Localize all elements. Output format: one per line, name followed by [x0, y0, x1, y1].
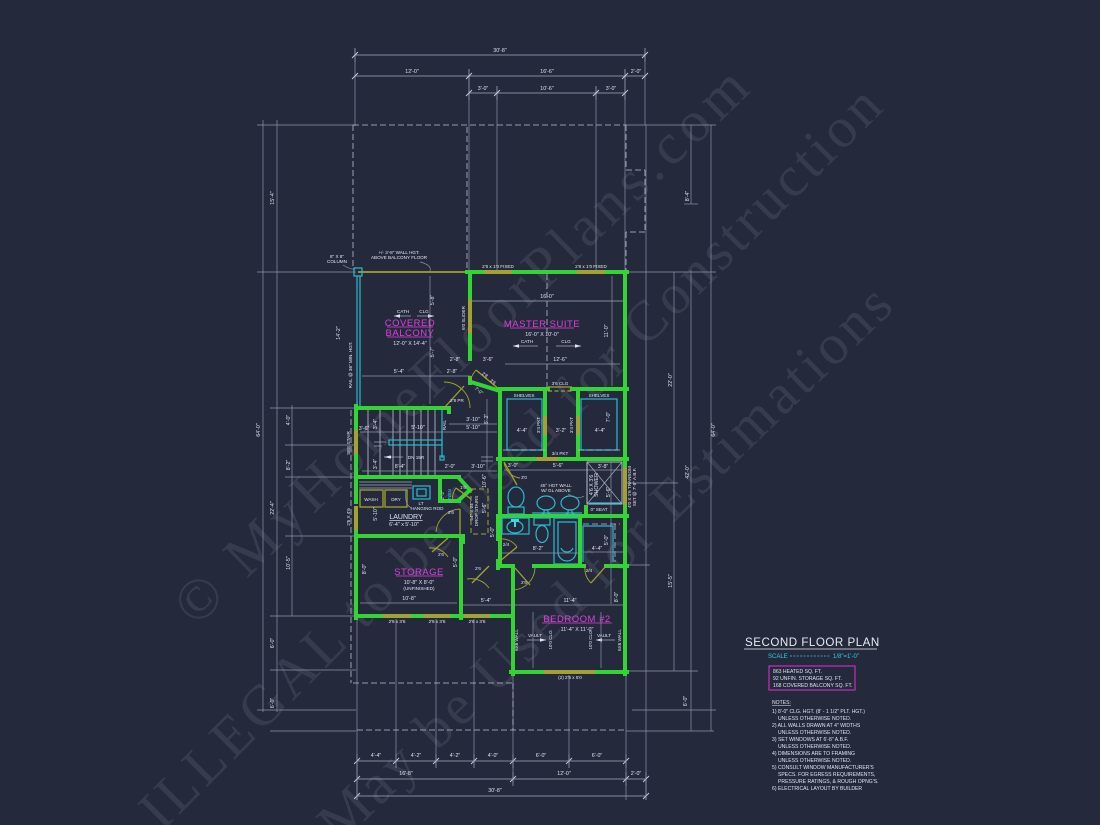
svg-text:3'6 CLG: 3'6 CLG [552, 381, 569, 386]
svg-text:2'-8": 2'-8" [450, 357, 461, 363]
svg-text:14'-2": 14'-2" [336, 326, 342, 340]
svg-text:10'0 CLG: 10'0 CLG [588, 630, 593, 650]
svg-text:NOTES:: NOTES: [772, 700, 791, 706]
svg-text:CATH: CATH [397, 309, 409, 314]
svg-text:3/4 PKT: 3/4 PKT [552, 451, 569, 456]
svg-text:RAIL: RAIL [442, 419, 447, 430]
svg-text:RAIL @ 36" MIN. HGT.: RAIL @ 36" MIN. HGT. [348, 342, 353, 389]
svg-text:8'-4": 8'-4" [395, 464, 406, 470]
svg-text:6X6 WALL: 6X6 WALL [617, 629, 622, 651]
svg-text:0" SEAT: 0" SEAT [590, 507, 607, 512]
svg-text:8'-2": 8'-2" [286, 460, 292, 471]
svg-text:92 UNFIN. STORAGE SQ. FT.: 92 UNFIN. STORAGE SQ. FT. [773, 676, 842, 682]
svg-text:LAUNDRY: LAUNDRY [389, 514, 423, 521]
svg-text:DRY: DRY [391, 497, 401, 502]
svg-text:3'4 PKT: 3'4 PKT [569, 417, 574, 433]
svg-text:2'6 x 3'6: 2'6 x 3'6 [429, 619, 446, 624]
svg-text:6'-0": 6'-0" [683, 696, 689, 707]
svg-text:6'-0": 6'-0" [536, 753, 547, 759]
svg-text:12'-0": 12'-0" [557, 771, 571, 777]
svg-text:168 COVERED BALCONY SQ. FT.: 168 COVERED BALCONY SQ. FT. [773, 683, 852, 689]
svg-text:3'-4": 3'-4" [373, 459, 379, 470]
svg-text:2'6 x 3'6: 2'6 x 3'6 [389, 619, 406, 624]
svg-text:64'-0": 64'-0" [711, 423, 717, 437]
svg-text:30'-8": 30'-8" [488, 788, 502, 794]
svg-text:3'-2": 3'-2" [556, 428, 567, 434]
svg-text:5'-6": 5'-6" [482, 503, 488, 514]
svg-text:10'-6": 10'-6" [540, 86, 554, 92]
svg-text:15'-4": 15'-4" [270, 191, 276, 205]
svg-text:5'-0": 5'-0" [490, 527, 496, 538]
svg-text:2'-2": 2'-2" [440, 490, 445, 500]
svg-text:4'-4": 4'-4" [592, 546, 603, 552]
svg-text:VAULT: VAULT [528, 633, 542, 638]
svg-text:SEE STAIR: SEE STAIR [346, 430, 351, 454]
svg-text:4'-0": 4'-0" [286, 415, 292, 426]
svg-text:CATH: CATH [521, 339, 533, 344]
svg-text:22'-0": 22'-0" [668, 373, 674, 387]
svg-text:5) CONSULT WINDOW MANUFACTURER: 5) CONSULT WINDOW MANUFACTURER'S [772, 765, 874, 771]
svg-text:2'-0": 2'-0" [445, 464, 456, 470]
svg-text:4) DIMENSIONS ARE TO FRAMING: 4) DIMENSIONS ARE TO FRAMING [772, 751, 855, 757]
svg-text:12'-0" X 14'-4": 12'-0" X 14'-4" [393, 341, 427, 347]
svg-text:PRESSURE RATINGS, & ROUGH OPNG: PRESSURE RATINGS, & ROUGH OPNG'S. [778, 779, 879, 785]
svg-text:4'-4": 4'-4" [595, 428, 606, 434]
svg-text:2/4: 2/4 [503, 542, 510, 547]
svg-text:4'-2": 4'-2" [450, 753, 461, 759]
svg-text:2'-0": 2'-0" [631, 69, 642, 75]
svg-text:3) SET WINDOWS AT 6'-8" A.B.F.: 3) SET WINDOWS AT 6'-8" A.B.F. [772, 737, 848, 743]
svg-text:3'-6": 3'-6" [483, 357, 494, 363]
svg-text:42'-0": 42'-0" [685, 465, 691, 479]
svg-text:3'4 PKT: 3'4 PKT [536, 417, 541, 433]
svg-text:6'0 SLIDER: 6'0 SLIDER [461, 305, 466, 330]
svg-text:16'-0" X 10'-0": 16'-0" X 10'-0" [525, 332, 559, 338]
svg-text:8'-2": 8'-2" [533, 546, 544, 552]
svg-text:10'-5": 10'-5" [286, 556, 292, 570]
svg-text:6'-4" x 5'-10": 6'-4" x 5'-10" [389, 522, 419, 528]
svg-text:10'0 CLG: 10'0 CLG [548, 630, 553, 650]
svg-text:LINEN: LINEN [447, 489, 452, 503]
svg-text:WASH: WASH [364, 497, 378, 502]
svg-text:3'-10": 3'-10" [466, 417, 480, 423]
svg-text:HANGING ROD: HANGING ROD [411, 506, 445, 511]
svg-text:2'6 X 4'6: 2'6 X 4'6 [346, 508, 351, 526]
svg-text:2'6 x 1'0 FIXED: 2'6 x 1'0 FIXED [482, 264, 514, 269]
svg-text:3'0: 3'0 [521, 475, 527, 480]
svg-text:5'-10": 5'-10" [411, 425, 425, 431]
svg-text:5'-10": 5'-10" [466, 425, 480, 431]
svg-text:6) ELECTRICAL LAYOUT BY BUILDE: 6) ELECTRICAL LAYOUT BY BUILDER [772, 786, 862, 792]
svg-text:SET @ 7'-8" A.B.F.: SET @ 7'-8" A.B.F. [632, 468, 637, 507]
svg-text:UNLESS OTHERWISE NOTED.: UNLESS OTHERWISE NOTED. [778, 716, 851, 722]
svg-text:5'-0": 5'-0" [604, 535, 610, 546]
svg-text:12'-0": 12'-0" [405, 69, 419, 75]
svg-text:SHELVES: SHELVES [589, 393, 610, 398]
svg-text:VAULT: VAULT [597, 633, 611, 638]
svg-text:SHOWER: SHOWER [594, 473, 600, 497]
svg-text:22'-4": 22'-4" [270, 501, 276, 515]
svg-text:SHELVES: SHELVES [514, 393, 535, 398]
svg-text:2'6 x 1'0 FIXED: 2'6 x 1'0 FIXED [575, 264, 607, 269]
svg-text:3'-0": 3'-0" [478, 86, 489, 92]
svg-text:3'-0": 3'-0" [606, 86, 617, 92]
svg-text:(2) 2'6 x 5'0: (2) 2'6 x 5'0 [558, 675, 582, 680]
svg-text:8'-4": 8'-4" [685, 191, 691, 202]
svg-text:ABOVE BALCONY FLOOR: ABOVE BALCONY FLOOR [371, 255, 428, 260]
svg-text:2'-8": 2'-8" [447, 369, 458, 375]
svg-text:16'-6": 16'-6" [540, 69, 554, 75]
svg-text:8'-0": 8'-0" [614, 592, 620, 603]
svg-text:SCALE: SCALE [768, 654, 788, 660]
svg-text:4'-4": 4'-4" [517, 428, 528, 434]
svg-text:1) 8'-0" CLG. HGT. (8' - 1 1/: 1) 8'-0" CLG. HGT. (8' - 1 1/2" PLT. HGT… [772, 709, 865, 715]
svg-text:2'6: 2'6 [448, 510, 454, 515]
svg-text:3'-10": 3'-10" [471, 464, 485, 470]
svg-text:DN 15R: DN 15R [408, 455, 425, 460]
svg-text:W/ GL ABOVE: W/ GL ABOVE [541, 488, 571, 493]
svg-text:2'6: 2'6 [475, 566, 481, 571]
svg-text:2) ALL WALLS DRAWN AT 4" WIDTH: 2) ALL WALLS DRAWN AT 4" WIDTHS [772, 723, 861, 729]
svg-text:1/8"=1'-0": 1/8"=1'-0" [833, 654, 859, 660]
svg-text:SPECS. FOR EGRESS REQUIREMENTS: SPECS. FOR EGRESS REQUIREMENTS, [778, 772, 875, 778]
svg-text:CLG: CLG [419, 309, 429, 314]
svg-text:3'-6": 3'-6" [359, 426, 370, 432]
svg-text:2/4: 2/4 [586, 568, 593, 573]
svg-text:5'-10": 5'-10" [373, 507, 379, 521]
svg-text:10'-8": 10'-8" [402, 596, 416, 602]
svg-text:6'-0": 6'-0" [270, 698, 276, 709]
svg-text:863 HEATED SQ. FT.: 863 HEATED SQ. FT. [773, 669, 822, 675]
svg-text:15'-5": 15'-5" [668, 574, 674, 588]
svg-text:5'-7": 5'-7" [430, 347, 436, 358]
svg-text:12'-6": 12'-6" [553, 357, 567, 363]
svg-text:5'-0": 5'-0" [453, 557, 459, 568]
svg-text:30'-8": 30'-8" [493, 48, 507, 54]
svg-text:6'-0": 6'-0" [592, 753, 603, 759]
svg-text:CLG: CLG [561, 339, 571, 344]
svg-text:7'-0": 7'-0" [606, 412, 612, 423]
svg-text:10'-6": 10'-6" [482, 474, 488, 488]
svg-text:11'-0": 11'-0" [604, 324, 610, 337]
svg-text:5'-4": 5'-4" [394, 369, 405, 375]
svg-text:64'-0": 64'-0" [256, 423, 262, 437]
svg-text:(UNFINISHED): (UNFINISHED) [403, 586, 435, 591]
svg-text:6X6 WALL: 6X6 WALL [514, 629, 519, 651]
svg-text:SECOND FLOOR PLAN: SECOND FLOOR PLAN [745, 636, 880, 649]
svg-text:5'-6": 5'-6" [553, 463, 564, 469]
svg-text:2'6: 2'6 [438, 552, 444, 557]
svg-text:16'-8": 16'-8" [399, 771, 413, 777]
svg-text:4'-4": 4'-4" [371, 753, 382, 759]
svg-text:8'-0": 8'-0" [362, 564, 368, 575]
svg-text:UNLESS OTHERWISE NOTED.: UNLESS OTHERWISE NOTED. [778, 744, 851, 750]
svg-text:DROP STAIRS: DROP STAIRS [474, 496, 479, 527]
svg-text:UNLESS OTHERWISE NOTED.: UNLESS OTHERWISE NOTED. [778, 730, 851, 736]
svg-text:1'6: 1'6 [460, 485, 466, 490]
svg-text:3'-4": 3'-4" [373, 419, 379, 430]
svg-text:4'-2": 4'-2" [411, 753, 422, 759]
svg-text:4'-0": 4'-0" [488, 753, 499, 759]
svg-text:11'-4": 11'-4" [563, 598, 576, 604]
svg-text:3'-0": 3'-0" [508, 463, 519, 469]
svg-text:6'-0": 6'-0" [270, 638, 276, 649]
svg-text:5'-4": 5'-4" [481, 598, 492, 604]
svg-text:COLUMN: COLUMN [327, 259, 347, 264]
svg-text:2'6: 2'6 [521, 580, 527, 585]
svg-text:2'6 x 3'6: 2'6 x 3'6 [469, 619, 486, 624]
svg-text:2'8 PR: 2'8 PR [450, 398, 464, 403]
svg-text:3'-8": 3'-8" [598, 464, 609, 470]
svg-text:UNLESS OTHERWISE NOTED.: UNLESS OTHERWISE NOTED. [778, 758, 851, 764]
svg-text:5'-8": 5'-8" [430, 295, 436, 306]
svg-text:2'-0": 2'-0" [631, 771, 642, 777]
